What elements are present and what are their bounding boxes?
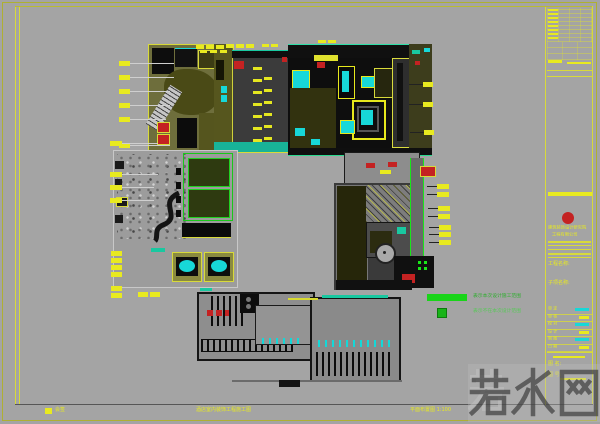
- info-row-label: 日 期: [548, 345, 557, 349]
- info-rows: 审 定审 核校 对设 计制 图日 期: [547, 306, 592, 350]
- info-row-label: 设 计: [548, 330, 557, 334]
- annotation-label: [119, 75, 130, 80]
- annotation-label: [110, 185, 122, 190]
- annotation-label: [439, 240, 451, 245]
- annotation-label: [119, 61, 130, 66]
- annotation-label: [111, 272, 122, 277]
- cad-sheet: 表示本次设计施工范围 表示不在本次设计范围 建筑装饰设计研究院 工程有限公司 工…: [0, 0, 600, 424]
- watermark-glyphs: [468, 364, 600, 422]
- annotation-label: [438, 206, 450, 211]
- annotation-label: [439, 225, 451, 230]
- leader-line: [410, 132, 424, 133]
- info-row-label: 审 核: [548, 315, 557, 319]
- info-row: 日 期: [547, 344, 592, 353]
- annotation-label: [437, 192, 449, 197]
- leader-line: [122, 143, 158, 144]
- annotation-label: [424, 130, 434, 135]
- annotation-label: [423, 82, 433, 87]
- annotation-label: [196, 45, 204, 49]
- annotation-label: [437, 184, 449, 189]
- annotation-label: [119, 103, 130, 108]
- divider: [547, 352, 592, 353]
- divider: [548, 257, 591, 258]
- text-dash: [548, 60, 562, 63]
- bottom-bar-left: 会签: [55, 408, 65, 414]
- leader-line: [122, 200, 154, 201]
- company-name: 工程有限公司: [552, 233, 578, 238]
- divider: [548, 249, 591, 250]
- annotation-label: [206, 45, 214, 49]
- annotation-label: [111, 286, 122, 291]
- annotation-label: [220, 50, 227, 53]
- leader-line: [429, 227, 439, 228]
- leader-line: [130, 91, 170, 92]
- annotation-label: [111, 293, 122, 298]
- black-tag: [279, 380, 300, 387]
- annotation-label: [438, 214, 450, 219]
- info-row-label: 审 定: [548, 307, 557, 311]
- annotation-label: [226, 44, 234, 48]
- info-row-value: [575, 338, 589, 341]
- annotation-label: [216, 45, 224, 49]
- leader-line: [409, 84, 423, 85]
- info-row-value: [575, 308, 589, 311]
- annotation-label: [110, 172, 122, 177]
- divider: [548, 241, 591, 243]
- underline: [567, 62, 591, 64]
- info-row-label: 制 图: [548, 337, 557, 341]
- annotation-label: [200, 50, 207, 53]
- info-row-value: [579, 346, 589, 349]
- leader-line: [122, 174, 158, 175]
- company-name: 建筑装饰设计研究院: [548, 226, 586, 231]
- annotation-label: [111, 258, 122, 263]
- annotation-label: [236, 44, 244, 48]
- leader-line: [130, 145, 170, 146]
- leader-line: [429, 234, 439, 235]
- leader-line: [429, 242, 439, 243]
- sign-box: [45, 408, 52, 414]
- leader-line: [427, 194, 437, 195]
- divider: [547, 70, 592, 71]
- leader-line: [428, 208, 438, 209]
- annotation-label: [138, 292, 148, 297]
- leader-line: [427, 186, 437, 187]
- annotation-label: [119, 117, 130, 122]
- field-label: 工程名称:: [548, 262, 570, 268]
- leader-line: [130, 105, 170, 106]
- annotation-label: [210, 50, 217, 53]
- annotation-label: [423, 102, 433, 107]
- annotation-label: [150, 292, 160, 297]
- watermark: [468, 364, 600, 422]
- divider: [547, 76, 592, 77]
- annotation-label: [119, 89, 130, 94]
- leader-line: [130, 77, 174, 78]
- annotation-label: [111, 265, 122, 270]
- annotation-label: [262, 44, 269, 47]
- info-row-label: 校 对: [548, 322, 557, 326]
- annotation-layer: [0, 0, 600, 424]
- revision-text: [548, 9, 558, 39]
- annotation-label: [110, 141, 122, 146]
- divider: [548, 245, 591, 246]
- leader-line: [409, 104, 423, 105]
- leader-line: [130, 63, 174, 64]
- info-row-value: [579, 316, 589, 319]
- underline: [553, 356, 585, 358]
- annotation-label: [328, 40, 336, 43]
- yellow-bar: [548, 192, 592, 196]
- leader-line: [130, 119, 166, 120]
- leader-line: [122, 187, 154, 188]
- leader-line: [428, 216, 438, 217]
- annotation-label: [439, 232, 451, 237]
- annotation-label: [110, 198, 122, 203]
- title-block: 建筑装饰设计研究院 工程有限公司 工程名称: 子项名称: 审 定审 核校 对设 …: [545, 7, 593, 405]
- annotation-label: [246, 44, 254, 48]
- divider: [548, 253, 591, 255]
- annotation-label: [111, 251, 122, 256]
- bottom-bar-scale: 平面布置图 1:100: [410, 408, 451, 414]
- bottom-bar-title: 酒店室内装饰工程施工图: [196, 408, 251, 414]
- signature-table: [547, 42, 592, 60]
- info-row-value: [579, 331, 589, 334]
- info-row-value: [575, 323, 589, 326]
- field-label: 子项名称:: [548, 281, 570, 287]
- annotation-label: [271, 44, 278, 47]
- company-stamp: [562, 212, 574, 224]
- annotation-label: [318, 40, 326, 43]
